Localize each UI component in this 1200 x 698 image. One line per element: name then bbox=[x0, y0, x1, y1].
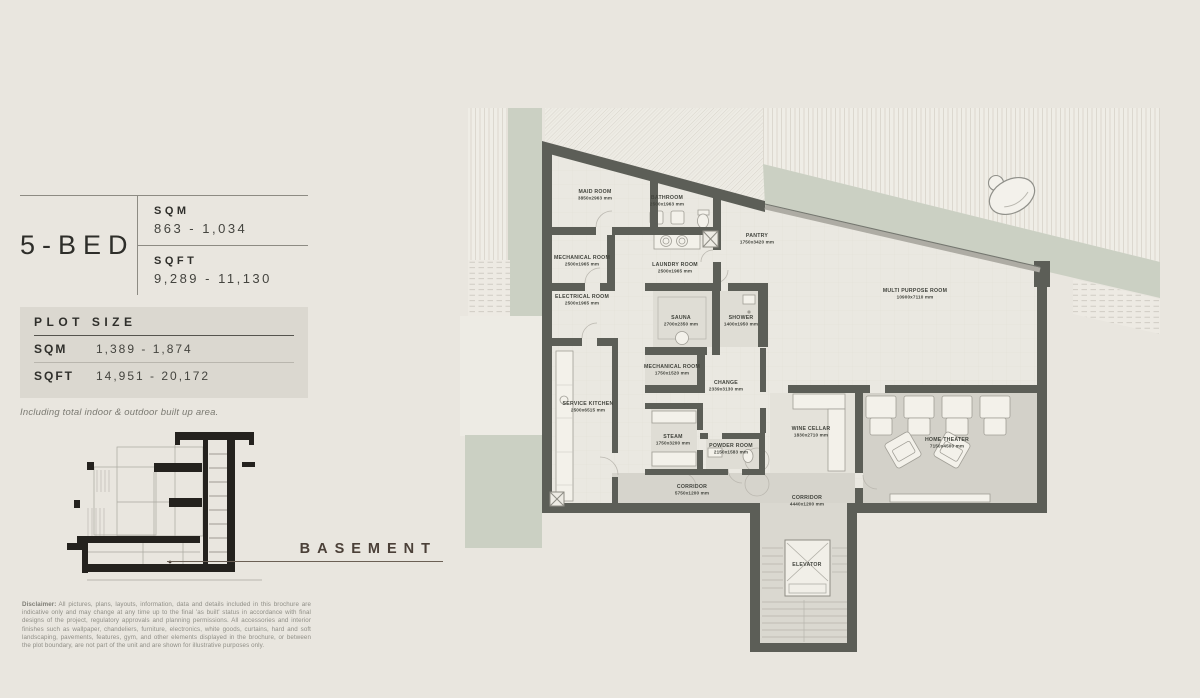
sqm-label: SQM bbox=[154, 205, 308, 217]
sqft-cell: SQFT 9,289 - 11,130 bbox=[138, 245, 308, 295]
plot-size-title: PLOT SIZE bbox=[34, 315, 294, 336]
floor-plan: MAID ROOM3850x2963 mmBATHROOM2500x1963 m… bbox=[460, 100, 1160, 660]
room-label: POWDER ROOM2150x1583 mm bbox=[709, 443, 753, 455]
info-panel: 5-BED SQM 863 - 1,034 SQFT 9,289 - 11,13… bbox=[20, 195, 308, 418]
room-label: HOME THEATER7150x4500 mm bbox=[925, 437, 969, 449]
disclaimer-text: All pictures, plans, layouts, informatio… bbox=[22, 601, 311, 649]
room-label: CORRIDOR5750x1200 mm bbox=[675, 484, 709, 496]
disclaimer: Disclaimer:All pictures, plans, layouts,… bbox=[22, 601, 311, 650]
room-label: WINE CELLAR1830x2710 mm bbox=[792, 426, 831, 438]
unit-spec-header: 5-BED SQM 863 - 1,034 SQFT 9,289 - 11,13… bbox=[20, 195, 308, 295]
plot-sqft-label: SQFT bbox=[34, 369, 96, 383]
room-label: ELEVATOR bbox=[792, 562, 821, 568]
plot-sqm-label: SQM bbox=[34, 342, 96, 356]
plot-sqm-value: 1,389 - 1,874 bbox=[96, 342, 193, 356]
room-label: LAUNDRY ROOM2500x1965 mm bbox=[652, 262, 698, 274]
sqft-label: SQFT bbox=[154, 255, 308, 267]
plot-row-sqft: SQFT 14,951 - 20,172 bbox=[34, 362, 294, 389]
sqft-value: 9,289 - 11,130 bbox=[154, 271, 308, 286]
room-label: CORRIDOR4440x1200 mm bbox=[790, 495, 824, 507]
room-label: CHANGE2339x3130 mm bbox=[709, 380, 743, 392]
disclaimer-label: Disclaimer: bbox=[22, 601, 56, 608]
room-label: BATHROOM2500x1963 mm bbox=[650, 195, 684, 207]
room-label: MAID ROOM3850x2963 mm bbox=[578, 189, 612, 201]
plot-sqft-value: 14,951 - 20,172 bbox=[96, 369, 210, 383]
building-section-diagram bbox=[57, 412, 307, 597]
unit-title: 5-BED bbox=[20, 196, 137, 295]
floor-level-label: BASEMENT bbox=[167, 541, 443, 562]
room-label: SHOWER1400x1950 mm bbox=[724, 315, 758, 327]
unit-areas: SQM 863 - 1,034 SQFT 9,289 - 11,130 bbox=[137, 196, 308, 295]
sqm-value: 863 - 1,034 bbox=[154, 221, 308, 236]
plot-size-box: PLOT SIZE SQM 1,389 - 1,874 SQFT 14,951 … bbox=[20, 307, 308, 398]
sqm-cell: SQM 863 - 1,034 bbox=[138, 196, 308, 245]
plot-row-sqm: SQM 1,389 - 1,874 bbox=[34, 336, 294, 362]
